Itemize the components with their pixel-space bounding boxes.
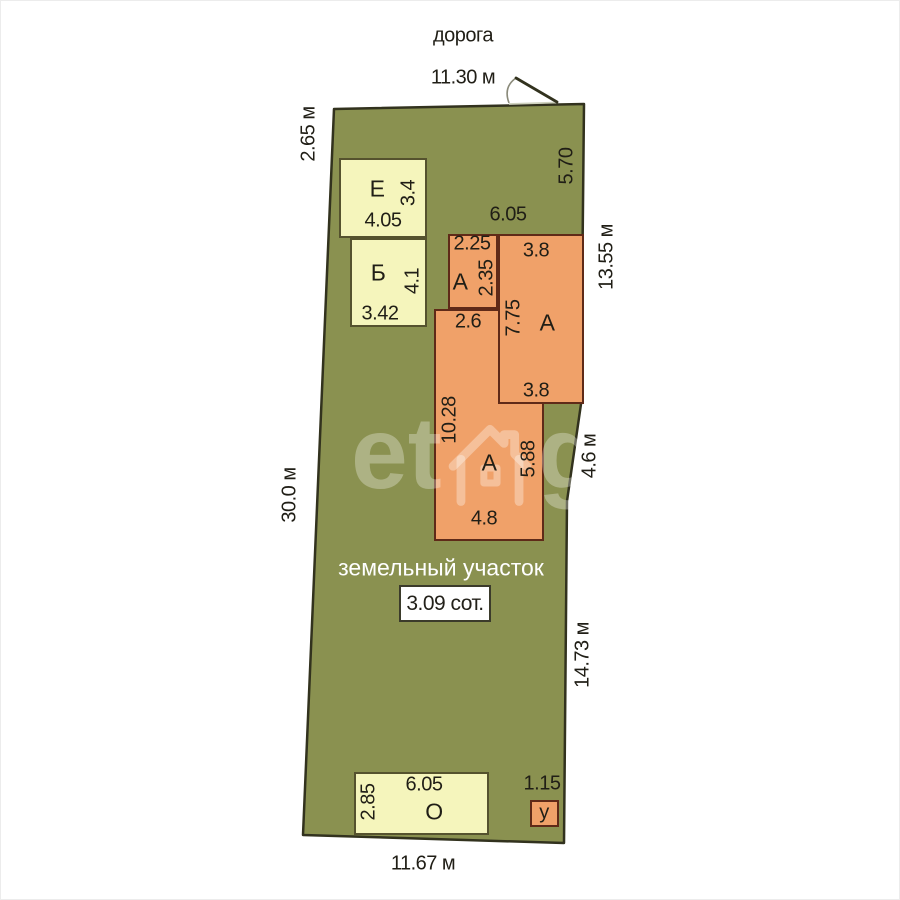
building-a-right-top-width: 3.8 (523, 240, 549, 263)
dim-right-mid: 4.6 м (579, 434, 602, 479)
dim-top-left: 2.65 м (298, 106, 321, 161)
building-a-main-bottom-width: 4.8 (471, 508, 497, 531)
gate-swing-arc (507, 78, 516, 103)
road-label: дорога (433, 25, 493, 48)
building-o-letter: О (425, 799, 442, 826)
building-a-right-height: 7.75 (503, 300, 526, 337)
building-e-letter: Е (370, 176, 385, 203)
building-a-right-bottom-width: 3.8 (523, 380, 549, 403)
building-a-main-letter: А (482, 450, 497, 477)
building-a-right-letter: А (540, 310, 555, 337)
building-b-height: 4.1 (402, 268, 425, 294)
building-a-annex-width: 2.25 (454, 233, 491, 256)
dim-top: 11.30 м (431, 67, 495, 90)
building-a-total-width: 6.05 (490, 204, 527, 227)
site-plan: et gi дорога 11.30 м 2.65 м 30.0 м 5.70 … (0, 0, 900, 900)
building-a-annex-height: 2.35 (476, 260, 499, 297)
building-e-width: 4.05 (365, 210, 402, 233)
dim-bottom: 11.67 м (391, 853, 455, 876)
building-u-width: 1.15 (524, 773, 561, 796)
building-a-annex-letter: А (453, 269, 468, 296)
building-e-height: 3.4 (398, 180, 421, 206)
building-a-main-inner-height: 5.88 (518, 441, 541, 478)
dim-right-top: 5.70 (556, 148, 579, 185)
building-b-width: 3.42 (362, 303, 399, 326)
dim-right-lower: 14.73 м (572, 622, 595, 688)
plot-area-box: 3.09 сот. (399, 585, 491, 622)
dim-left: 30.0 м (279, 467, 302, 522)
building-b-letter: Б (371, 260, 386, 287)
building-o-height: 2.85 (358, 784, 381, 821)
gate-leaf (516, 78, 557, 102)
building-o-width: 6.05 (406, 774, 443, 797)
building-a-main-top-width: 2.6 (455, 311, 481, 334)
plot-area-value: 3.09 сот. (406, 592, 483, 616)
plot-name-label: земельный участок (338, 555, 544, 582)
dim-right-upper: 13.55 м (596, 224, 619, 290)
building-a-main-height: 10.28 (439, 396, 462, 444)
building-u-letter: у (539, 802, 549, 825)
